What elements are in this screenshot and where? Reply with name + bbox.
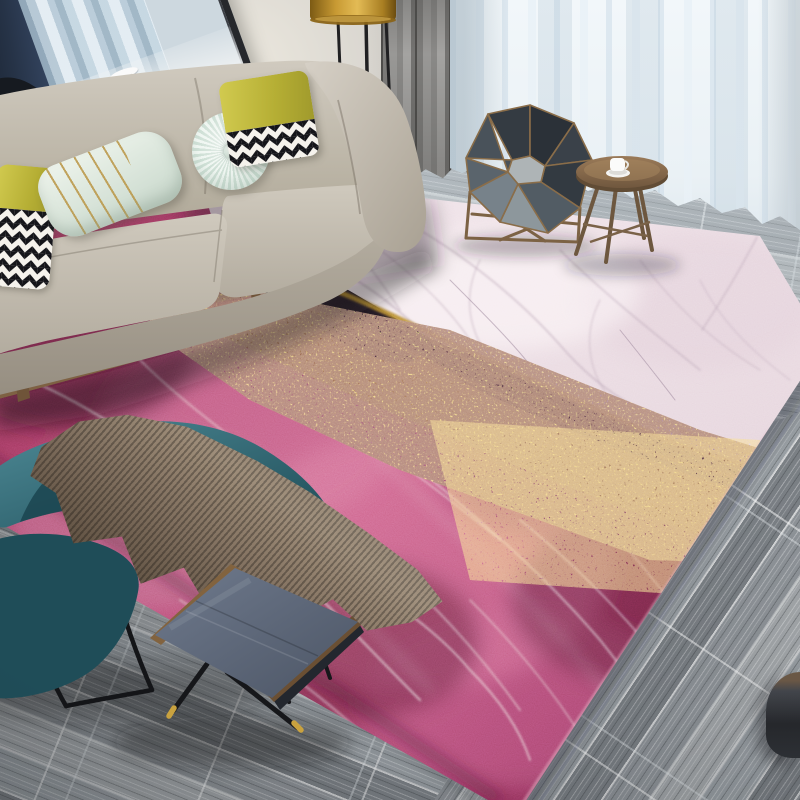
pillow-zigzag-band — [0, 207, 55, 290]
pillow-chartreuse-zigzag-right — [218, 69, 320, 168]
living-room-scene — [0, 0, 800, 800]
mirror-reflection-table-leg — [130, 73, 140, 88]
mirror-reflection-table-leg — [118, 78, 123, 94]
